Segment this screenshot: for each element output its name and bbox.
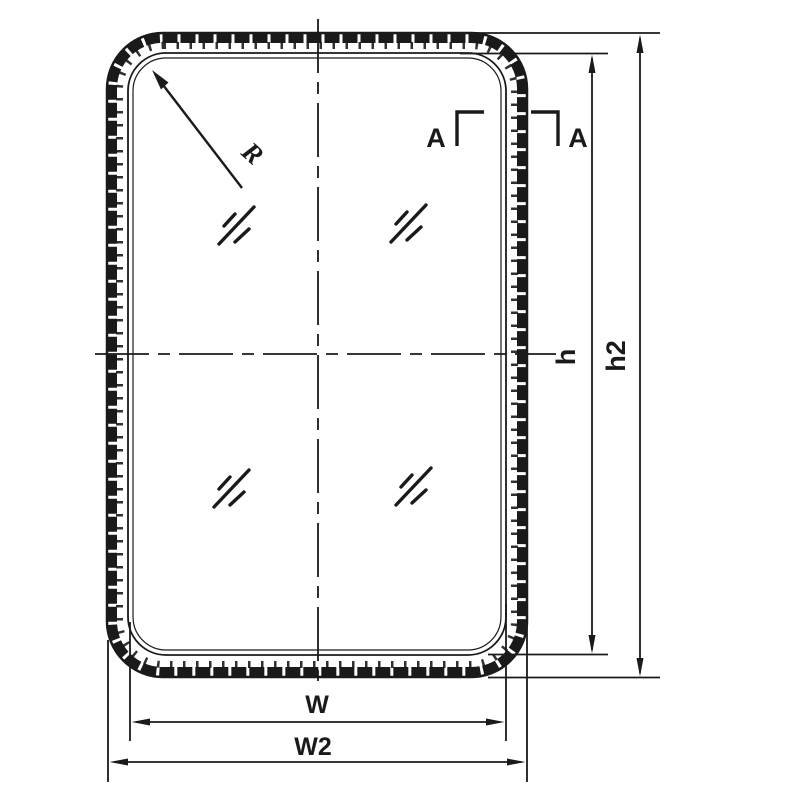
arrowhead-right-icon [507, 759, 526, 766]
drawing-svg: R A A h h2 W W2 [0, 0, 800, 800]
radius-leader-line [160, 81, 242, 188]
inner-height-label: h [551, 349, 581, 366]
window-frame [107, 33, 527, 677]
section-label-left: A [426, 123, 446, 153]
outer-height-label: h2 [601, 340, 631, 372]
glass-hatch-icon [219, 207, 254, 244]
inner-width-label: W [305, 691, 329, 719]
glass-symbols [214, 205, 431, 507]
frame-hatch-ticks [120, 46, 515, 665]
radius-label: R [235, 135, 269, 170]
section-label-right: A [568, 123, 588, 153]
arrowhead-up-icon [589, 55, 596, 74]
arrowhead-down-icon [589, 635, 596, 654]
glass-hatch-icon [391, 205, 426, 242]
arrowhead-left-icon [132, 719, 151, 726]
glass-hatch-icon [396, 468, 431, 505]
section-bracket-left [457, 112, 484, 146]
arrowhead-right-icon [486, 719, 505, 726]
technical-drawing-window-frame: R A A h h2 W W2 [0, 0, 800, 800]
section-bracket-right [531, 112, 558, 146]
frame-hatched-band [113, 39, 522, 672]
arrowhead-down-icon [637, 658, 644, 677]
centerlines [95, 19, 556, 681]
arrowhead-up-icon [637, 35, 644, 54]
arrowhead-left-icon [110, 759, 129, 766]
glass-hatch-icon [214, 470, 249, 507]
radius-leader: R [152, 70, 269, 188]
section-markers [457, 112, 558, 146]
radius-arrowhead-icon [152, 70, 169, 90]
frame-outer-edge [107, 33, 527, 677]
outer-width-label: W2 [294, 733, 332, 761]
